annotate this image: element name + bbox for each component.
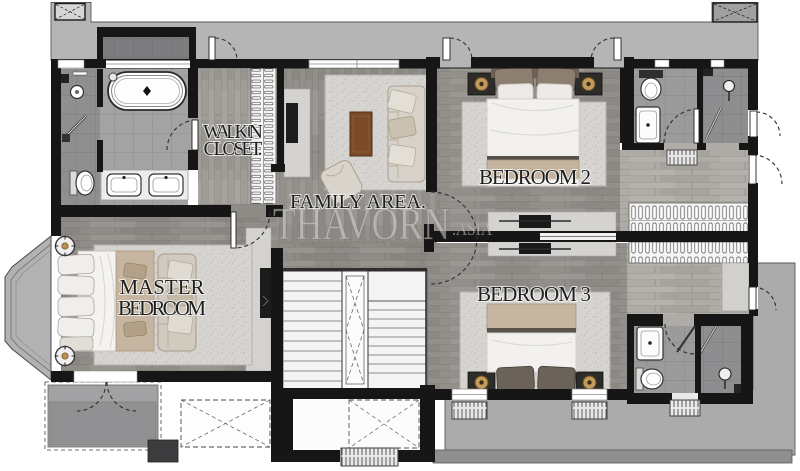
svg-text:BEDROOM 2: BEDROOM 2 — [479, 165, 591, 189]
svg-text:FAMILY AREA.: FAMILY AREA. — [290, 191, 426, 213]
svg-text:BEDROOM 3: BEDROOM 3 — [477, 282, 591, 306]
svg-text:CLOSET.: CLOSET. — [204, 138, 263, 160]
svg-text:.ASIA: .ASIA — [452, 219, 492, 240]
svg-text:BEDROOM: BEDROOM — [118, 296, 206, 320]
